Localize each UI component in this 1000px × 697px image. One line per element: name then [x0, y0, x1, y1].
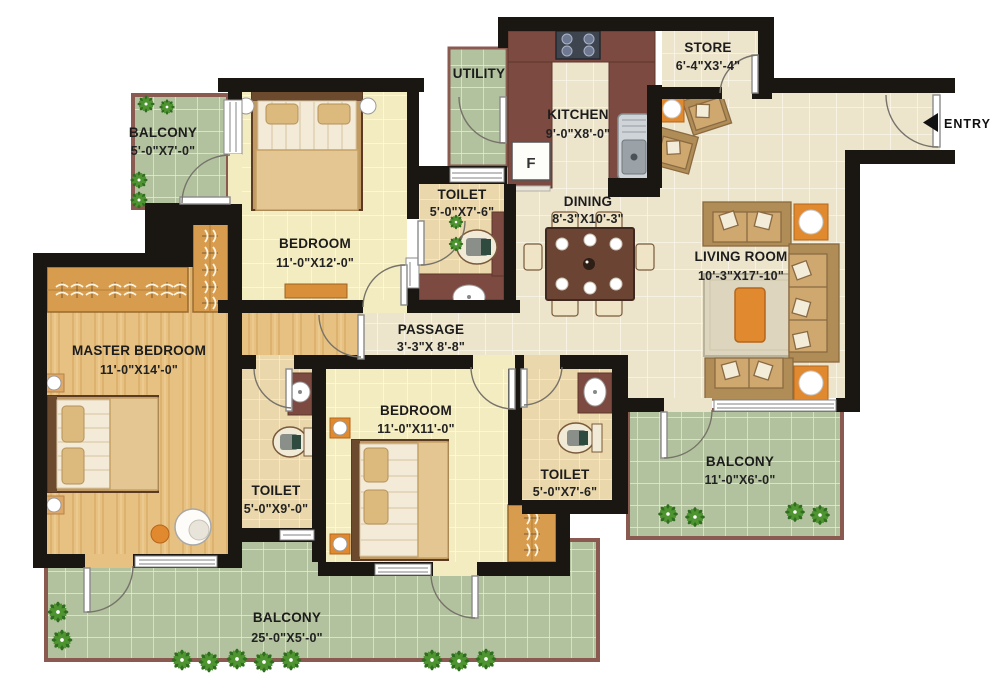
bedroom1-dims: 11'-0"X12'-0" — [276, 256, 354, 270]
dining-dims: 8'-3"X10'-3" — [552, 212, 624, 226]
balcony-top-left-dims: 5'-0"X7'-0" — [131, 144, 195, 158]
floor-plan-page: F — [0, 0, 1000, 697]
dining-label: DINING — [564, 194, 612, 209]
toilet-left-door-opening — [256, 355, 294, 369]
floor-plan: F — [0, 0, 1000, 697]
master-bedroom-label: MASTER BEDROOM — [72, 343, 206, 358]
store-dims: 6'-4"X3'-4" — [676, 59, 740, 73]
bedroom2-dims: 11'-0"X11'-0" — [377, 422, 454, 436]
master-bedroom-dims: 11'-0"X14'-0" — [100, 363, 178, 377]
utility-label: UTILITY — [453, 66, 505, 81]
master-entry-nook-floor — [242, 313, 363, 355]
passage-label: PASSAGE — [398, 322, 464, 337]
bedroom1-label: BEDROOM — [279, 236, 351, 251]
kitchen-dims: 9'-0"X8'-0" — [546, 127, 610, 141]
entry-label: ENTRY — [944, 117, 991, 131]
living-room-dims: 10'-3"X17'-10" — [698, 269, 784, 283]
toilet-top-label: TOILET — [438, 187, 488, 202]
balcony-right-dims: 11'-0"X6'-0" — [705, 473, 776, 487]
toilet-left-label: TOILET — [252, 483, 302, 498]
bedroom2-label: BEDROOM — [380, 403, 452, 418]
balcony-bottom-dims: 25'-0"X5'-0" — [251, 631, 323, 645]
fridge-label: F — [526, 155, 535, 172]
balcony-top-left-label: BALCONY — [129, 125, 197, 140]
store-label: STORE — [684, 40, 731, 55]
toilet-left-dims: 5'-0"X9'-0" — [244, 502, 308, 516]
toilet-right-dims: 5'-0"X7'-6" — [533, 485, 597, 499]
balcony-bottom-label: BALCONY — [253, 610, 321, 625]
master-bed — [44, 374, 158, 514]
living-room-label: LIVING ROOM — [695, 249, 788, 264]
kitchen-label: KITCHEN — [547, 107, 608, 122]
bedroom1-dresser — [285, 284, 347, 298]
balcony-right-label: BALCONY — [706, 454, 774, 469]
toilet-right-label: TOILET — [541, 467, 591, 482]
bedroom1-bed — [238, 92, 376, 210]
passage-dims: 3'-3"X 8'-8" — [397, 340, 465, 354]
kitchen-stove — [556, 31, 600, 59]
kitchen-sink — [618, 114, 650, 180]
toilet-top-dims: 5'-0"X7'-6" — [430, 205, 494, 219]
